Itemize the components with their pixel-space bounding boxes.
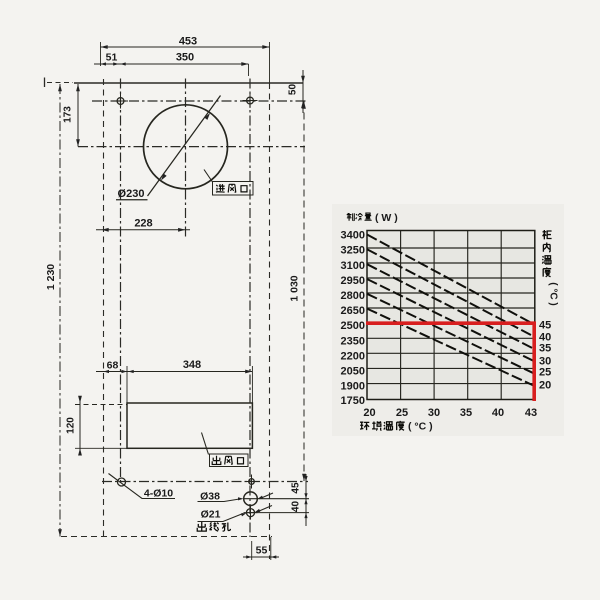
svg-text:25: 25 [539,366,551,378]
svg-text:40: 40 [492,407,504,419]
svg-text:3250: 3250 [341,245,365,257]
svg-text:40: 40 [291,501,302,513]
svg-text:3100: 3100 [341,260,365,272]
svg-text:120: 120 [66,417,77,434]
svg-text:51: 51 [106,52,118,64]
svg-text:30: 30 [428,407,440,419]
svg-text:45: 45 [291,482,302,494]
svg-text:3400: 3400 [341,230,365,242]
svg-text:4-Ø10: 4-Ø10 [144,488,173,500]
svg-text:173: 173 [63,106,74,123]
svg-text:25: 25 [396,407,408,419]
svg-text:348: 348 [183,359,201,371]
svg-text:2350: 2350 [341,335,365,347]
svg-text:2950: 2950 [341,275,365,287]
svg-text:1 030: 1 030 [289,275,301,301]
svg-text:1 230: 1 230 [45,264,57,290]
svg-text:2650: 2650 [341,305,365,317]
svg-text:1900: 1900 [341,381,365,393]
svg-text:45: 45 [539,320,551,332]
svg-text:( W ): ( W ) [375,212,398,224]
svg-text:35: 35 [460,407,472,419]
svg-text:2500: 2500 [341,320,365,332]
svg-text:Ø230: Ø230 [118,188,145,200]
svg-text:228: 228 [134,218,152,230]
svg-text:50: 50 [288,84,299,96]
svg-text:55: 55 [256,545,268,557]
svg-text:453: 453 [179,36,197,48]
svg-text:43: 43 [525,407,537,419]
svg-text:20: 20 [363,407,375,419]
svg-text:2050: 2050 [341,366,365,378]
svg-text:Ø21: Ø21 [201,509,221,521]
svg-text:35: 35 [539,342,551,354]
svg-text:20: 20 [539,380,551,392]
svg-text:2200: 2200 [341,350,365,362]
svg-text:( °C ): ( °C ) [408,421,433,433]
svg-text:1750: 1750 [341,395,365,407]
svg-text:68: 68 [107,360,119,372]
svg-text:2800: 2800 [341,290,365,302]
svg-text:Ø38: Ø38 [200,491,220,503]
svg-text:350: 350 [176,52,194,64]
svg-text:( °C ): ( °C ) [548,282,559,305]
